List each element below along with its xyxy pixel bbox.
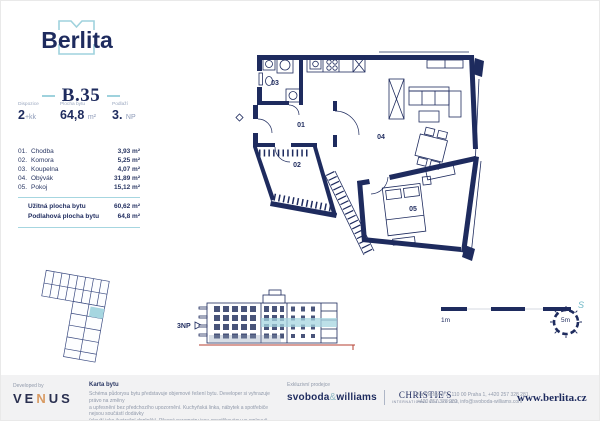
- logo-divider: [384, 390, 385, 405]
- room-name: Komora: [31, 156, 118, 165]
- room-row-04: 04. Obývák 31,89 m²: [18, 174, 140, 183]
- spec-label: Dispozice: [18, 102, 60, 107]
- room-number: 01.: [18, 147, 31, 156]
- developed-by-label: Developed by: [13, 383, 44, 389]
- room-area: 15,12 m²: [114, 183, 140, 192]
- room-number: 05.: [18, 183, 31, 192]
- room-number: 03.: [18, 165, 31, 174]
- brand-name: Berlita: [41, 27, 113, 53]
- room-row-01: 01. Chodba 3,93 m²: [18, 147, 140, 156]
- spec-value: 2+kk: [18, 109, 60, 124]
- disclaimer-line: a upřesnění bez předchozího upozornění. …: [89, 405, 279, 419]
- total-label: Užitná plocha bytu: [18, 202, 114, 212]
- footer: Developed by VENUS Karta bytu Schéma půd…: [1, 375, 600, 421]
- brand-logo: Berlita: [31, 14, 123, 60]
- room-area: 4,07 m²: [118, 165, 140, 174]
- building-outline: [32, 270, 109, 362]
- plan-label-04: 04: [377, 134, 385, 141]
- developer-logo-part: US: [49, 391, 73, 406]
- room-row-03: 03. Koupelna 4,07 m²: [18, 165, 140, 174]
- total-label: Podlahová plocha bytu: [18, 212, 118, 222]
- broker-label: Exkluzivní prodejce: [287, 382, 330, 388]
- broker-contact: Na Perštýně 2, 110 00 Praha 1, +420 257 …: [417, 392, 530, 406]
- developer-logo-accent: N: [36, 391, 48, 406]
- room-area: 3,93 m²: [118, 147, 140, 156]
- spec-label: Podlaží: [112, 102, 144, 107]
- room-row-05: 05. Pokoj 15,12 m²: [18, 183, 140, 192]
- plan-label-02: 02: [293, 162, 301, 169]
- room-name: Koupelna: [31, 165, 118, 174]
- building-elevation: 3NP: [169, 281, 365, 371]
- compass-ring-icon: [554, 310, 578, 334]
- developer-logo-part: VE: [13, 391, 36, 406]
- total-value: 60,62 m²: [114, 202, 140, 212]
- scale-start-label: 1m: [441, 317, 450, 324]
- plan-label-03: 03: [271, 80, 279, 87]
- spec-disposition: Dispozice 2+kk: [18, 102, 60, 124]
- area-totals: Užitná plocha bytu 60,62 m² Podlahová pl…: [18, 197, 140, 228]
- spec-floor: Podlaží 3. NP: [112, 102, 144, 124]
- unit-card-page: Berlita B.35 Dispozice 2+kk Plocha bytu …: [0, 0, 600, 421]
- room-area: 31,89 m²: [114, 174, 140, 183]
- disclaimer-line: Schéma půdorysu bytu představuje objemov…: [89, 391, 279, 405]
- room-number: 04.: [18, 174, 31, 183]
- ground-floor-strip: [209, 335, 281, 343]
- unit-specs: Dispozice 2+kk Plocha bytu 64,8 m² Podla…: [18, 102, 144, 124]
- spec-label: Plocha bytu: [60, 102, 112, 107]
- website-link: www.berlita.cz: [517, 392, 587, 404]
- spec-area: Plocha bytu 64,8 m²: [60, 102, 112, 124]
- card-title: Karta bytu: [89, 382, 119, 388]
- room-name: Chodba: [31, 147, 118, 156]
- plan-label-01: 01: [297, 122, 305, 129]
- room-list: 01. Chodba 3,93 m² 02. Komora 5,25 m² 03…: [18, 147, 140, 192]
- contact-line: Na Perštýně 2, 110 00 Praha 1, +420 257 …: [417, 392, 530, 399]
- living-room-furniture: [389, 60, 463, 170]
- floor-indicator-label: 3NP: [177, 323, 191, 330]
- ground-line: [199, 345, 355, 350]
- room-area: 5,25 m²: [118, 156, 140, 165]
- total-floor-area: Podlahová plocha bytu 64,8 m²: [18, 212, 140, 222]
- total-value: 64,8 m²: [118, 212, 140, 222]
- spec-value: 3. NP: [112, 109, 144, 124]
- developer-logo: VENUS: [13, 391, 73, 406]
- highlighted-floor-band: [261, 318, 337, 327]
- bathroom-fixtures: [259, 57, 300, 102]
- room-name: Obývák: [31, 174, 114, 183]
- plan-label-05: 05: [409, 206, 417, 213]
- room-name: Pokoj: [31, 183, 114, 192]
- compass-north-label: S: [578, 300, 584, 310]
- heading-dash-right: [107, 95, 120, 97]
- entrance-marker-icon: [236, 114, 243, 121]
- total-usable-area: Užitná plocha bytu 60,62 m²: [18, 202, 140, 212]
- svoboda-williams-logo: svoboda&williams: [287, 392, 377, 403]
- disclaimer: Schéma půdorysu bytu představuje objemov…: [89, 391, 279, 421]
- room-number: 02.: [18, 156, 31, 165]
- site-plan: [29, 265, 133, 371]
- compass: S: [547, 295, 591, 341]
- plan-walls: [253, 55, 484, 261]
- contact-line: +420 257 328 282, info@svoboda-williams.…: [417, 399, 530, 406]
- spec-value: 64,8 m²: [60, 109, 112, 124]
- heading-dash-left: [42, 95, 55, 97]
- floor-plan: 03 01 02 04 05: [229, 49, 485, 269]
- room-row-02: 02. Komora 5,25 m²: [18, 156, 140, 165]
